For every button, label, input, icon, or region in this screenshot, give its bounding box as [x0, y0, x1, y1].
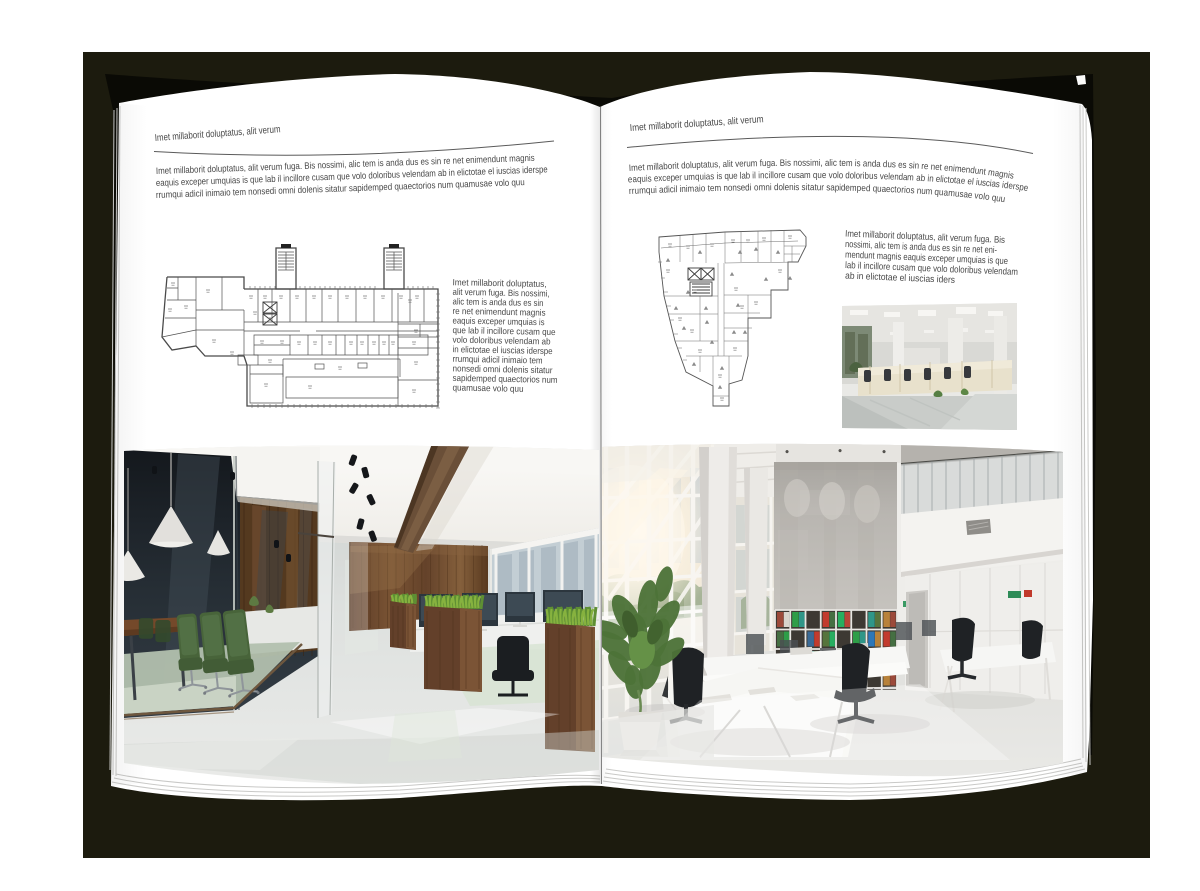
svg-text:quamusae volo quu: quamusae volo quu [452, 382, 523, 393]
